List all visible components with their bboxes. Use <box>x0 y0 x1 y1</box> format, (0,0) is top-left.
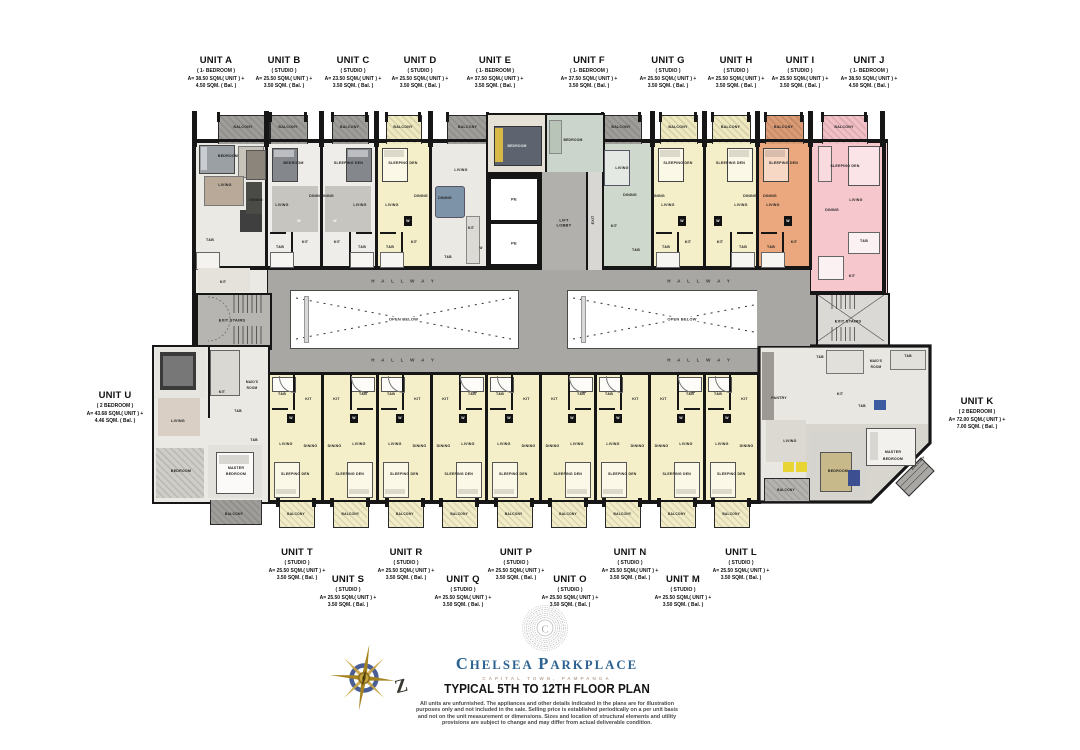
svg-text:C: C <box>541 624 548 636</box>
